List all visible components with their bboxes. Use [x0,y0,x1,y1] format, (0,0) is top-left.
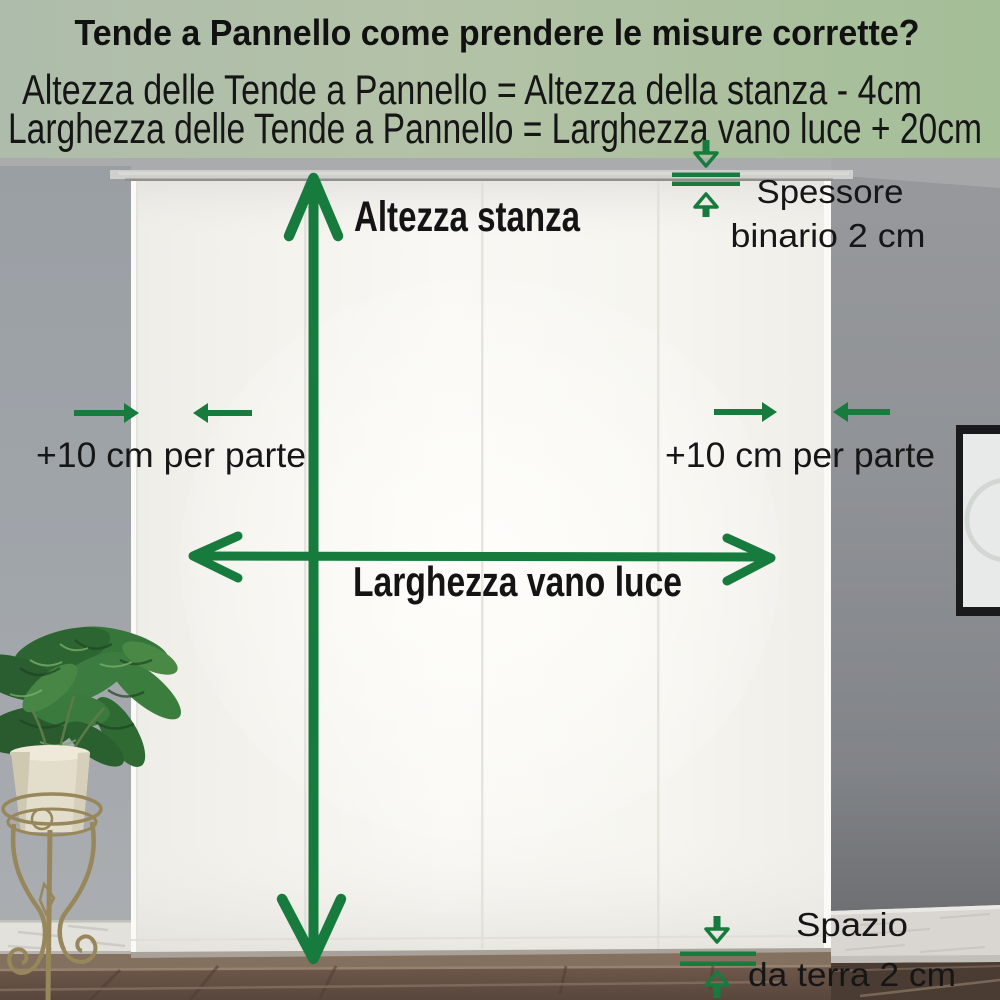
svg-text:binario 2 cm: binario 2 cm [731,217,926,254]
svg-text:Spessore: Spessore [757,173,904,210]
svg-text:Altezza stanza: Altezza stanza [354,193,581,241]
svg-text:Tende a Pannello come prendere: Tende a Pannello come prendere le misure… [75,12,920,53]
svg-text:Spazio: Spazio [796,906,908,943]
svg-text:Larghezza delle Tende a Pannel: Larghezza delle Tende a Pannello = Largh… [8,105,982,153]
svg-text:+10 cm per parte: +10 cm per parte [36,436,306,475]
svg-text:da terra 2 cm: da terra 2 cm [748,956,956,993]
svg-text:Larghezza vano luce: Larghezza vano luce [353,558,682,605]
svg-text:+10 cm per parte: +10 cm per parte [665,436,935,475]
